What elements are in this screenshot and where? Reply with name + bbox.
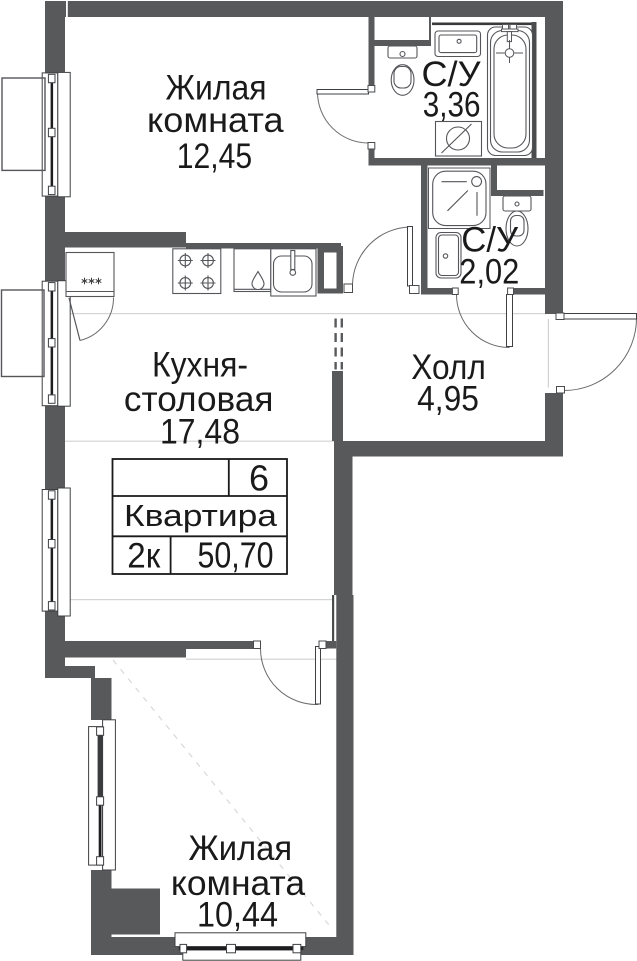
svg-text:50,70: 50,70 [198,535,274,576]
svg-text:2,02: 2,02 [459,253,519,292]
svg-text:2к: 2к [127,537,161,576]
svg-text:Квартира: Квартира [124,498,278,533]
svg-text:10,44: 10,44 [197,896,278,935]
svg-text:3,36: 3,36 [423,86,481,125]
svg-text:12,45: 12,45 [177,137,252,176]
svg-text:6: 6 [249,458,269,499]
svg-text:комната: комната [147,101,284,140]
svg-text:Кухня-: Кухня- [152,346,248,385]
svg-text:17,48: 17,48 [160,413,240,452]
svg-text:4,95: 4,95 [417,380,479,419]
svg-text:Жилая: Жилая [189,829,293,868]
